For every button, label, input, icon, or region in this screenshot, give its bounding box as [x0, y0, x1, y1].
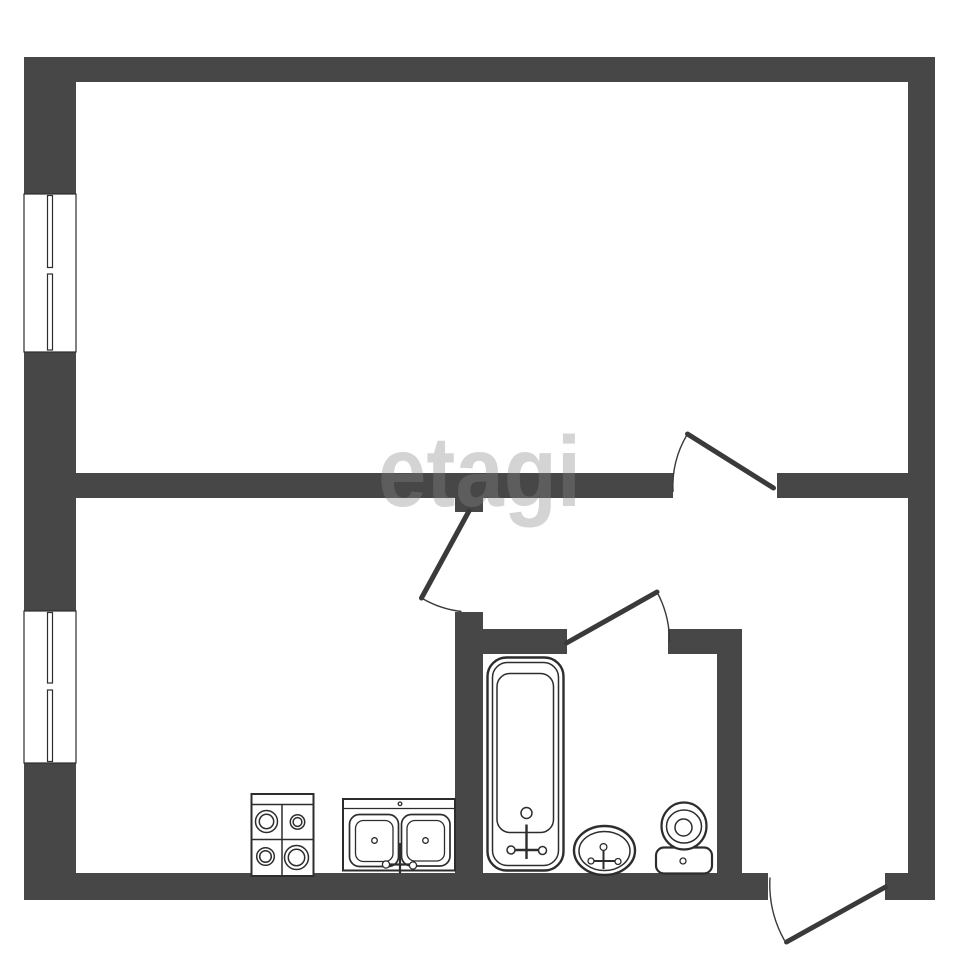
kitchen-sink-icon	[343, 799, 455, 874]
door-swing-arc	[770, 878, 785, 941]
wall-bathroom-left	[455, 612, 483, 873]
window-sash-upper	[48, 613, 53, 684]
washbasin-icon	[574, 826, 635, 875]
wall-bottom-left	[24, 873, 768, 900]
wall-bathroom-right	[717, 629, 742, 873]
door-swing-arc	[673, 434, 688, 492]
door-living-room	[673, 434, 774, 492]
door-leaf	[688, 434, 774, 488]
watermark: etagi	[378, 416, 581, 528]
wall-top	[24, 57, 935, 82]
window-sash-lower	[48, 274, 53, 350]
wall-right	[908, 57, 935, 900]
stove-icon	[252, 794, 314, 876]
wall-bathroom-top-left	[483, 629, 567, 654]
door-entrance	[770, 878, 886, 943]
wall-bottom-right	[885, 873, 935, 900]
door-leaf	[787, 887, 886, 942]
bathtub-icon	[488, 658, 564, 871]
floor-plan-drawing: etagi	[0, 0, 960, 960]
toilet-icon	[656, 803, 712, 874]
door-bathroom	[567, 592, 670, 643]
window-living-room	[24, 194, 76, 352]
floor-plan: etagi	[0, 0, 960, 960]
wall-middle-left	[76, 473, 673, 498]
window-kitchen	[24, 611, 76, 763]
wall-left	[24, 57, 76, 900]
door-leaf	[567, 592, 658, 643]
door-swing-arc	[657, 592, 670, 642]
door-swing-arc	[422, 598, 462, 612]
window-sash-lower	[48, 690, 53, 762]
window-sash-upper	[48, 196, 53, 268]
toilet-tank	[656, 848, 712, 874]
wall-middle-right	[777, 473, 908, 498]
